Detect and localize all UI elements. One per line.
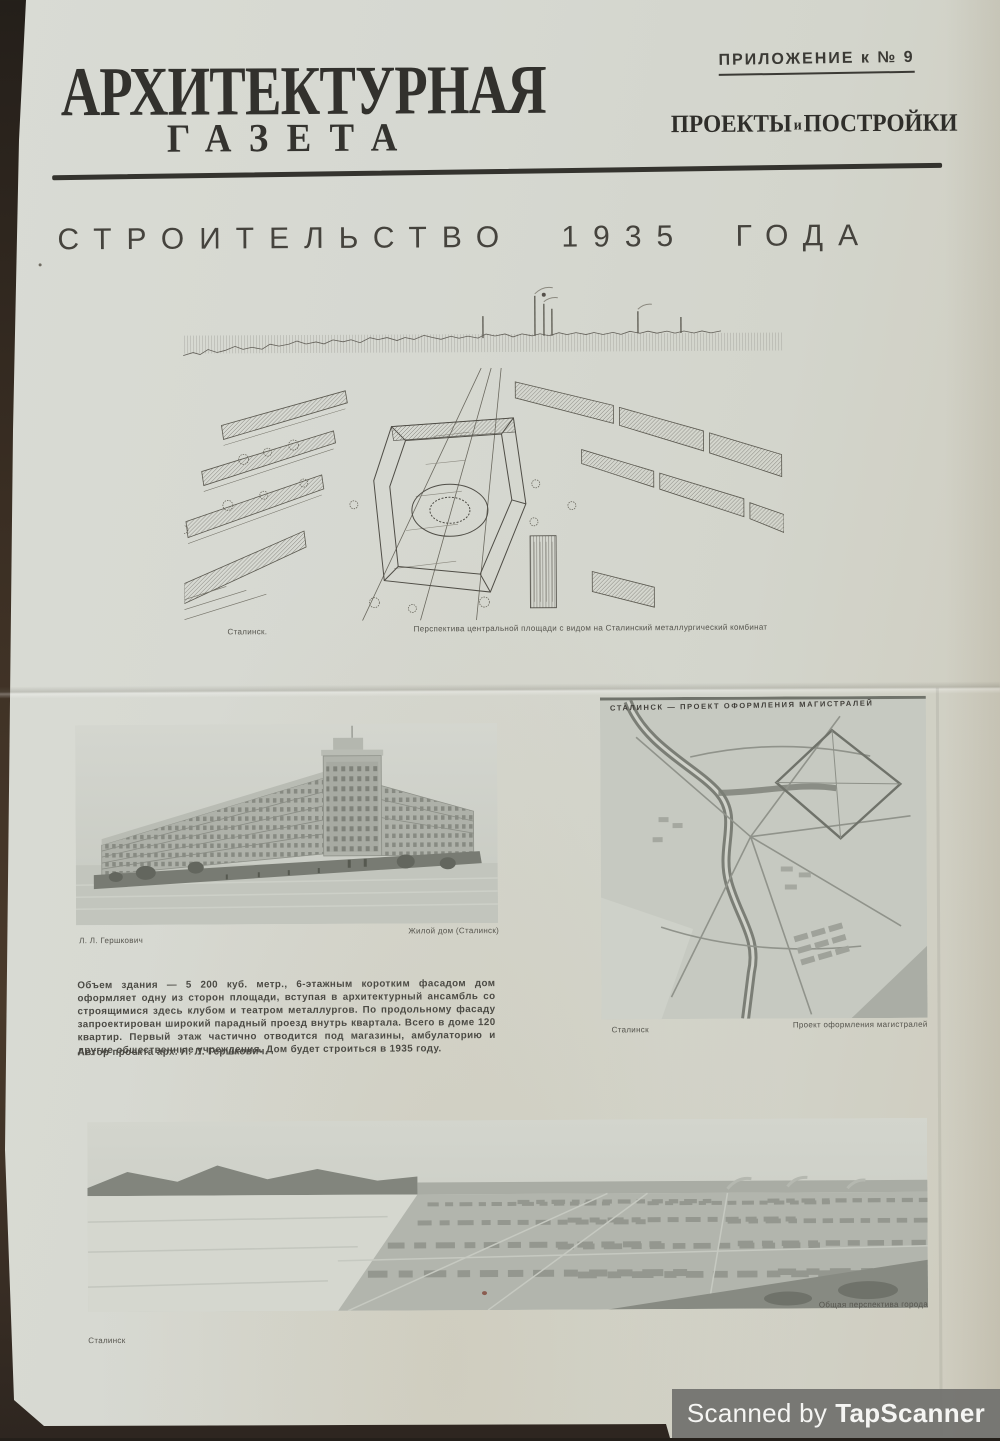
caption-aerial-description: Перспектива центральной площади с видом …: [392, 622, 790, 634]
caption-aerial-location: Сталинск.: [228, 627, 268, 637]
article-author-line: Автор проекта арх. Л. Л. Гершкович.: [78, 1044, 496, 1059]
watermark-prefix: Scanned by: [687, 1398, 827, 1429]
figure-residential-building: [75, 723, 498, 925]
watermark-brand: TapScanner: [835, 1398, 985, 1429]
supplement-label: ПРИЛОЖЕНИЕ к № 9: [718, 49, 914, 76]
header-rule-divider: [52, 163, 942, 180]
caption-panorama-location: Сталинск: [88, 1336, 125, 1346]
vertical-fold-crease: [936, 688, 943, 1436]
building-illustration: [75, 723, 498, 925]
caption-building-title: Жилой дом (Сталинск): [389, 926, 499, 936]
panorama-illustration: [87, 1118, 928, 1312]
section-label: ПРОЕКТЫиПОСТРОЙКИ: [671, 110, 958, 140]
scanned-newspaper-page: АРХИТЕКТУРНАЯ ГАЗЕТА ПРИЛОЖЕНИЕ к № 9 ПР…: [0, 0, 1000, 1438]
aerial-illustration: [183, 275, 785, 622]
watermark-bar: Scanned by TapScanner: [672, 1389, 1000, 1438]
figure-aerial-perspective: [183, 275, 785, 622]
caption-map-title: Проект оформления магистралей: [758, 1020, 928, 1030]
paper-speck: [482, 1291, 487, 1295]
caption-building-architect: Л. Л. Гершкович: [79, 936, 143, 946]
section-projects: ПРОЕКТЫ: [671, 110, 792, 138]
section-conjunction: и: [794, 117, 802, 133]
page-content: АРХИТЕКТУРНАЯ ГАЗЕТА ПРИЛОЖЕНИЕ к № 9 ПР…: [0, 0, 1000, 1441]
figure-city-panorama: [87, 1118, 928, 1312]
figure-city-plan-map: [600, 696, 928, 1020]
section-buildings: ПОСТРОЙКИ: [804, 110, 958, 138]
masthead-subtitle: ГАЗЕТА: [167, 117, 416, 158]
caption-panorama-title: Общая перспектива города: [748, 1300, 928, 1311]
paper-speck: [39, 263, 42, 266]
paper-speck: [542, 293, 546, 297]
map-illustration: [600, 696, 928, 1020]
page-headline: СТРОИТЕЛЬСТВО 1935 ГОДА: [57, 219, 957, 258]
caption-map-location: Сталинск: [612, 1025, 649, 1035]
